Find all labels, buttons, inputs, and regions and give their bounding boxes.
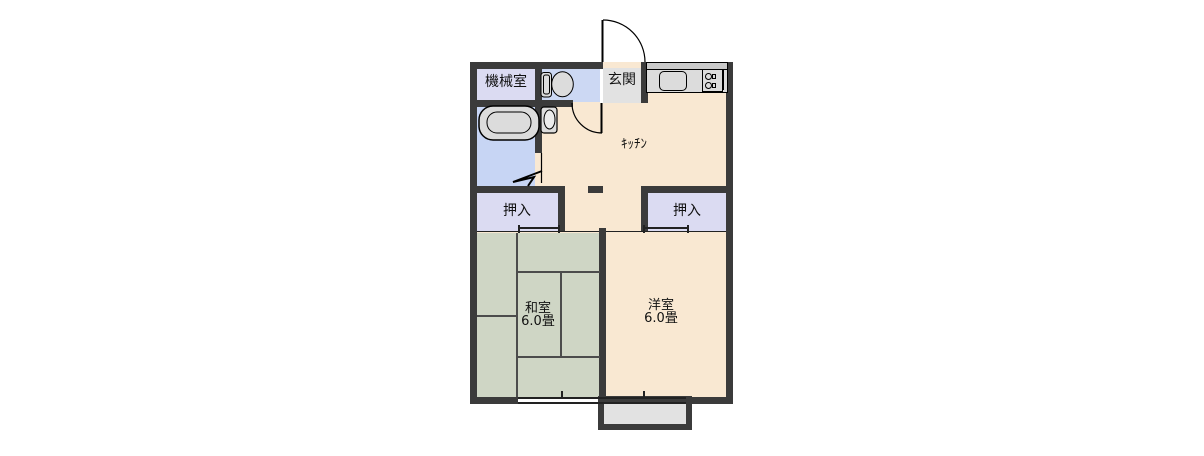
youshitsu-label: 洋室 6.0畳 [644,299,678,325]
fixtures-layer [0,0,1204,456]
wash-basin-bowl [544,110,555,129]
closet-left-label: 押入 [503,204,531,218]
genkan-label: 玄関 [608,73,636,87]
floor-plan: 機械室 玄関 ｷｯﾁﾝ 押入 押入 和室 6.0畳 洋室 6.0畳 [0,0,1204,456]
folding-door-mark [513,171,542,186]
kitchen-door-arc [572,103,602,133]
entrance-door-arc [603,20,645,62]
washitsu-size: 6.0畳 [521,315,555,328]
youshitsu-size: 6.0畳 [644,312,678,325]
bathtub-icon [479,106,539,140]
machine-room-label: 機械室 [485,75,527,89]
kitchen-label: ｷｯﾁﾝ [621,138,647,152]
washitsu-label: 和室 6.0畳 [521,302,555,328]
closet-right-label: 押入 [673,204,701,218]
toilet-icon [552,72,574,97]
